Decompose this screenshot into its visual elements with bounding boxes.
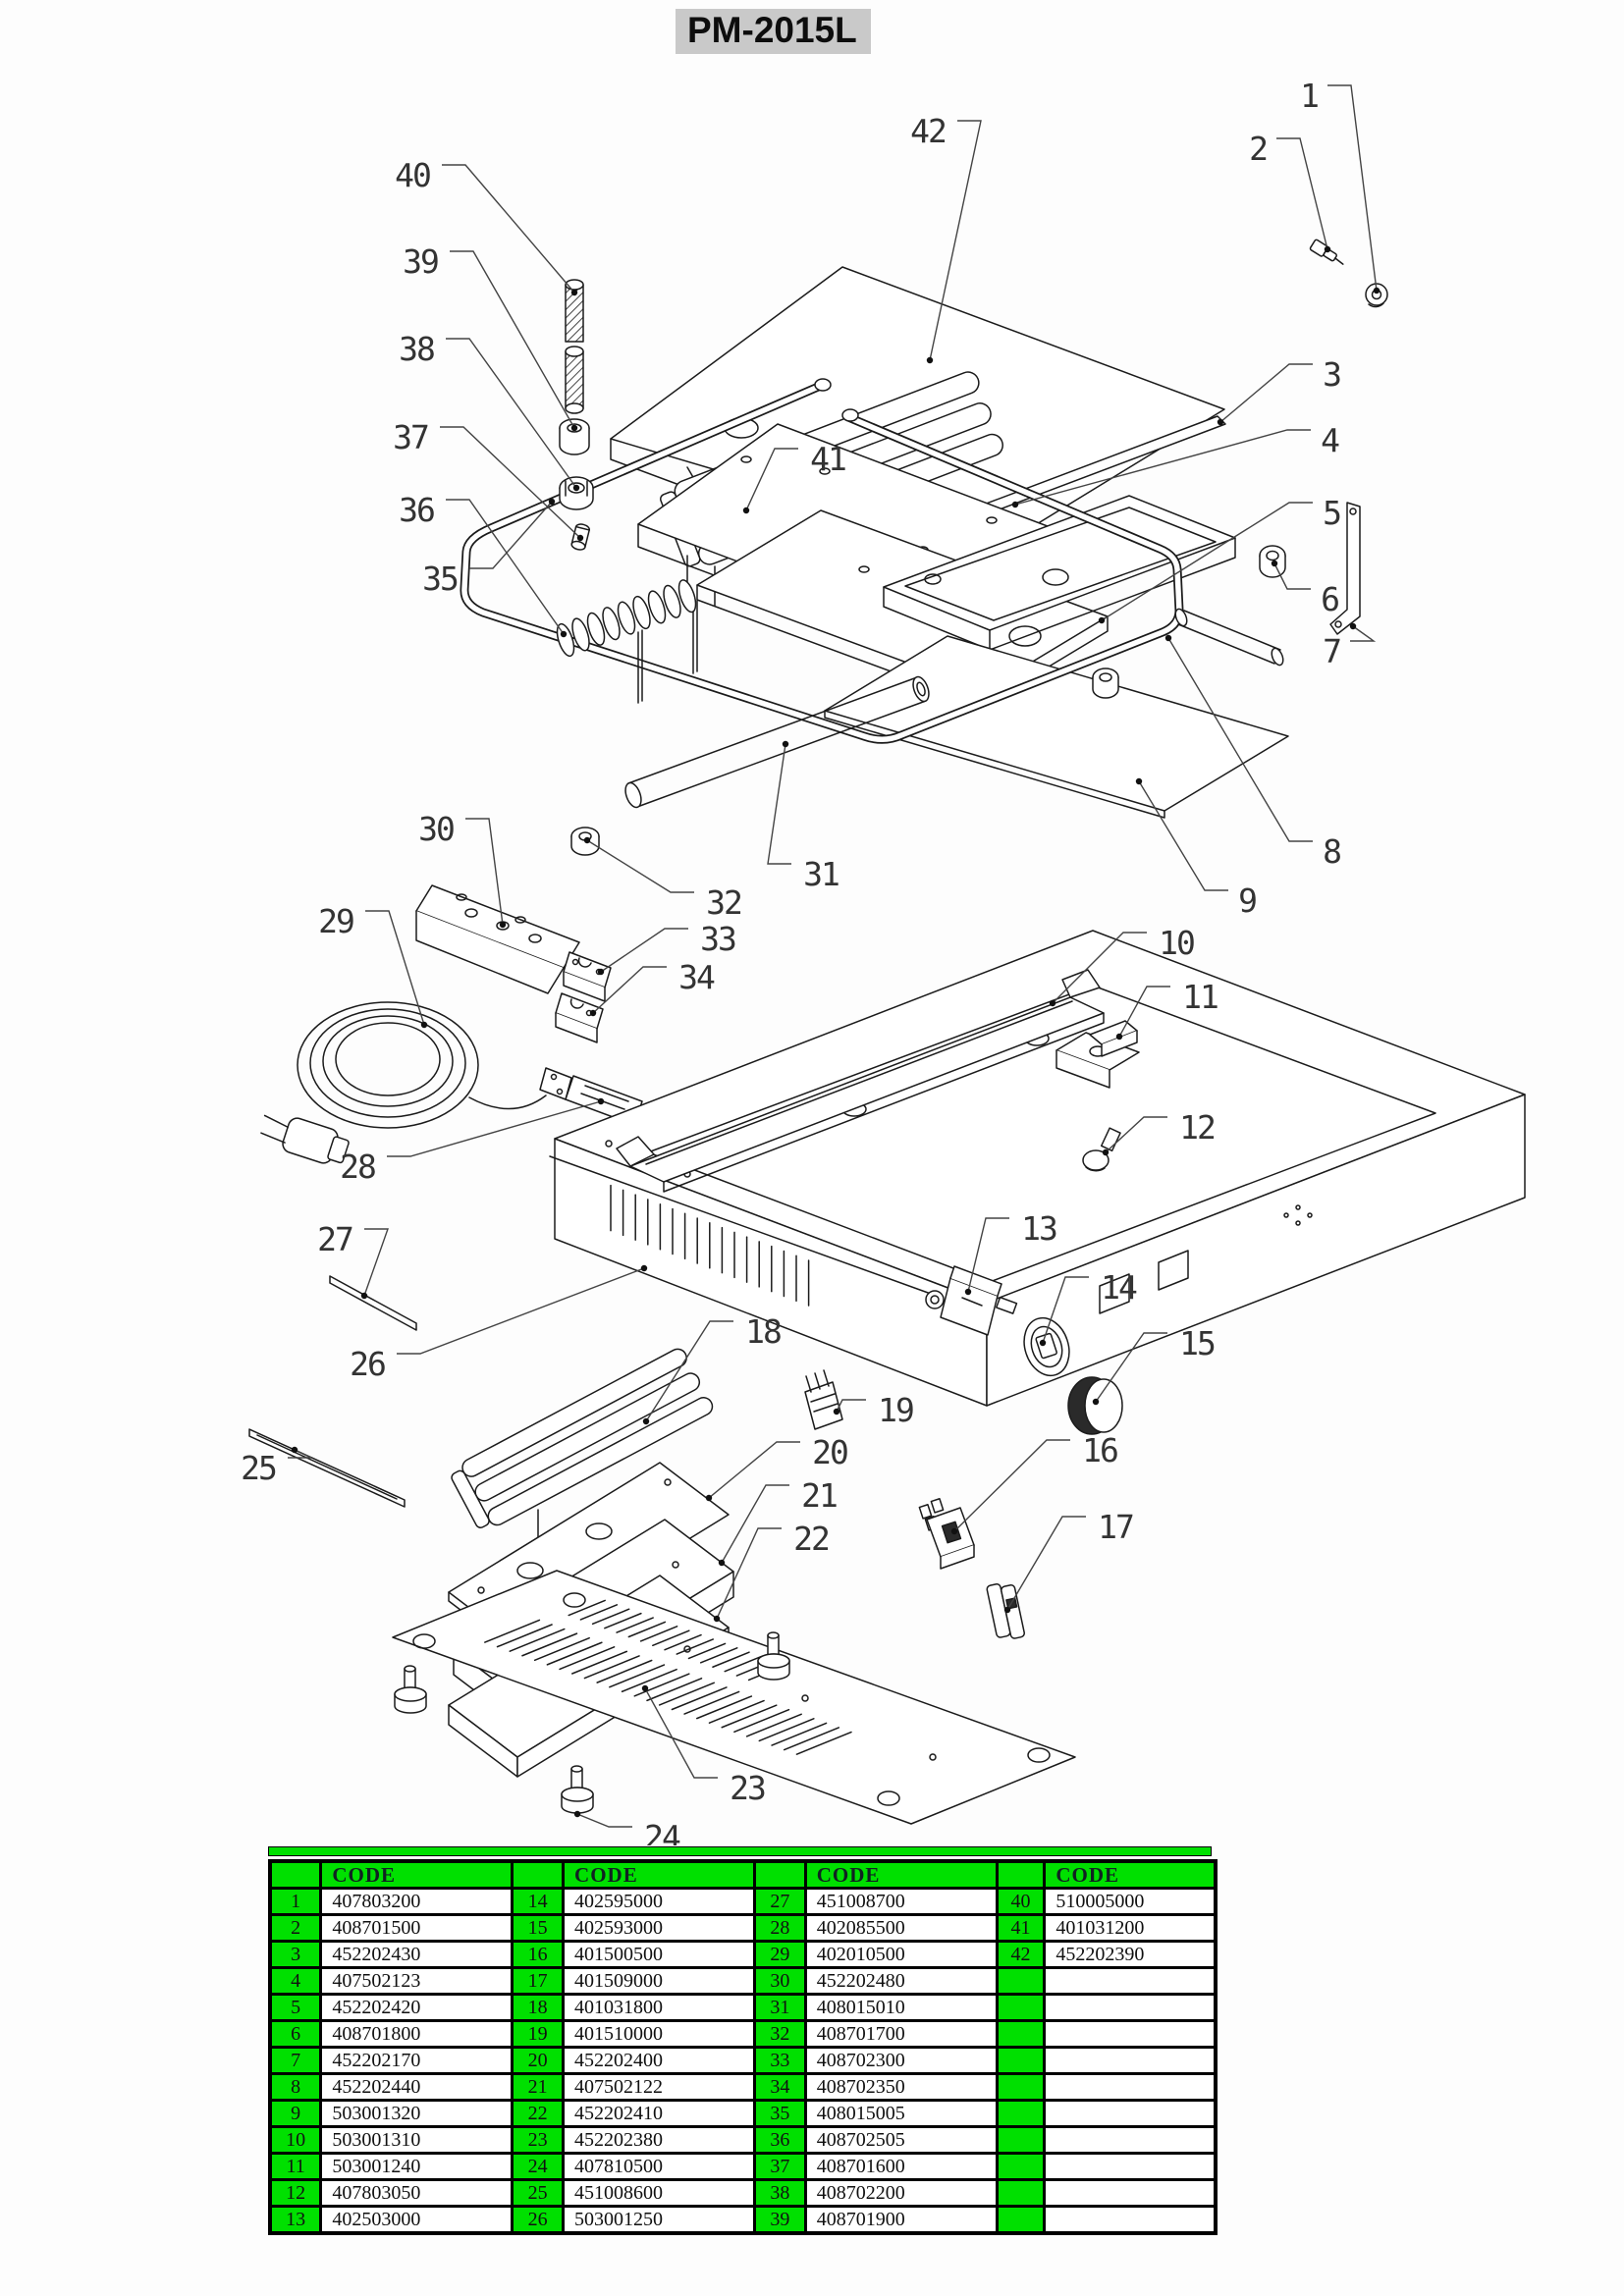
anchor-dot — [1218, 419, 1223, 425]
part-foot — [562, 1766, 593, 1813]
leader-line — [587, 840, 694, 892]
part-number-cell: 23 — [513, 2127, 564, 2154]
part-code-cell: 407803200 — [321, 1889, 513, 1915]
part-code-cell: 408702200 — [805, 2180, 997, 2207]
part-number-cell — [997, 1995, 1045, 2021]
part-number-cell: 18 — [513, 1995, 564, 2021]
part-number-cell: 37 — [754, 2154, 805, 2180]
callout-9: 9 — [1238, 881, 1256, 920]
leader-line — [722, 1485, 789, 1563]
part-number-cell — [997, 2074, 1045, 2101]
part-number-cell — [997, 2021, 1045, 2048]
part-code-cell: 402595000 — [564, 1889, 755, 1915]
callout-31: 31 — [803, 855, 839, 893]
part-number-cell: 32 — [754, 2021, 805, 2048]
anchor-dot — [549, 499, 555, 505]
callout-30: 30 — [418, 810, 454, 848]
anchor-dot — [1040, 1340, 1046, 1346]
leader-line — [954, 1440, 1070, 1531]
callout-1: 1 — [1300, 77, 1318, 115]
part-code-cell: 452202480 — [805, 1968, 997, 1995]
part-code-cell: 503001310 — [321, 2127, 513, 2154]
leader-line — [768, 744, 791, 864]
part-code-cell: 408701500 — [321, 1915, 513, 1942]
part-threaded-rod — [566, 280, 583, 413]
part-number-cell — [997, 2101, 1045, 2127]
callout-36: 36 — [399, 491, 434, 529]
table-header-num — [513, 1861, 564, 1889]
table-header-num — [997, 1861, 1045, 1889]
part-number-cell — [997, 2048, 1045, 2074]
anchor-dot — [598, 969, 604, 975]
callout-34: 34 — [678, 958, 715, 996]
callout-19: 19 — [878, 1391, 913, 1429]
part-screw-small — [1310, 240, 1347, 269]
part-code-cell: 408701900 — [805, 2207, 997, 2234]
callout-12: 12 — [1179, 1108, 1215, 1147]
anchor-dot — [834, 1409, 839, 1415]
callout-26: 26 — [350, 1345, 385, 1383]
part-code-cell — [1045, 1968, 1216, 1995]
part-code-cell: 407803050 — [321, 2180, 513, 2207]
callout-2: 2 — [1249, 130, 1267, 168]
table-row: 3452202430164015005002940201050042452202… — [270, 1942, 1216, 1968]
part-code-cell — [1045, 2180, 1216, 2207]
part-number-cell: 33 — [754, 2048, 805, 2074]
part-code-cell: 510005000 — [1045, 1889, 1216, 1915]
table-row: 64087018001940151000032408701700 — [270, 2021, 1216, 2048]
leader-line — [446, 339, 576, 488]
part-code-cell: 503001250 — [564, 2207, 755, 2234]
part-clamp-block-33 — [564, 952, 611, 1001]
anchor-dot — [574, 1811, 580, 1817]
part-pin-strip — [330, 1276, 416, 1330]
table-row: 134025030002650300125039408701900 — [270, 2207, 1216, 2234]
anchor-dot — [1093, 1399, 1099, 1405]
anchor-dot — [561, 631, 567, 637]
page: PM-2015L — [0, 0, 1624, 2296]
callout-17: 17 — [1098, 1508, 1133, 1546]
part-number-cell: 10 — [270, 2127, 321, 2154]
table-row: 54522024201840103180031408015010 — [270, 1995, 1216, 2021]
part-code-cell: 402503000 — [321, 2207, 513, 2234]
part-number-cell: 16 — [513, 1942, 564, 1968]
anchor-dot — [1350, 623, 1356, 629]
anchor-dot — [743, 507, 749, 513]
part-code-cell: 402593000 — [564, 1915, 755, 1942]
callout-35: 35 — [422, 560, 458, 598]
part-code-cell: 408701700 — [805, 2021, 997, 2048]
anchor-dot — [1116, 1034, 1122, 1040]
part-number-cell: 36 — [754, 2127, 805, 2154]
part-number-cell: 28 — [754, 1915, 805, 1942]
part-number-cell: 29 — [754, 1942, 805, 1968]
part-number-cell: 7 — [270, 2048, 321, 2074]
anchor-dot — [1136, 778, 1142, 784]
part-foot — [395, 1666, 426, 1713]
callout-23: 23 — [730, 1769, 765, 1807]
part-number-cell: 31 — [754, 1995, 805, 2021]
callout-18: 18 — [745, 1312, 781, 1351]
callout-42: 42 — [910, 112, 946, 150]
leader-line — [1220, 364, 1313, 422]
anchor-dot — [642, 1685, 648, 1691]
part-number-cell: 22 — [513, 2101, 564, 2127]
part-number-cell: 9 — [270, 2101, 321, 2127]
part-code-cell: 401031800 — [564, 1995, 755, 2021]
part-rocker-switch — [919, 1499, 974, 1569]
anchor-dot — [965, 1289, 971, 1295]
anchor-dot — [1004, 1607, 1010, 1613]
callout-24: 24 — [644, 1818, 680, 1845]
anchor-dot — [1165, 635, 1171, 641]
leader-line — [1276, 138, 1327, 249]
leader-line — [1007, 1517, 1086, 1610]
callout-22: 22 — [793, 1520, 829, 1558]
part-code-cell — [1045, 2101, 1216, 2127]
table-row: 105030013102345220238036408702505 — [270, 2127, 1216, 2154]
part-code-cell: 408701600 — [805, 2154, 997, 2180]
part-code-cell: 401500500 — [564, 1942, 755, 1968]
part-code-cell: 452202390 — [1045, 1942, 1216, 1968]
leader-line — [365, 911, 424, 1025]
part-hex-nut — [560, 477, 593, 509]
part-code-cell: 402010500 — [805, 1942, 997, 1968]
table-row: 74522021702045220240033408702300 — [270, 2048, 1216, 2074]
part-power-cord — [256, 1002, 546, 1169]
part-bracket-bar — [416, 885, 579, 993]
exploded-diagram: 1234567891011121314151617181920212223242… — [0, 0, 1624, 1845]
leader-line — [709, 1442, 800, 1498]
part-number-cell: 35 — [754, 2101, 805, 2127]
part-number-cell: 42 — [997, 1942, 1045, 1968]
part-code-cell: 401510000 — [564, 2021, 755, 2048]
part-code-cell — [1045, 2048, 1216, 2074]
callout-29: 29 — [318, 902, 353, 940]
part-number-cell — [997, 2180, 1045, 2207]
part-code-cell: 503001320 — [321, 2101, 513, 2127]
part-number-cell: 17 — [513, 1968, 564, 1995]
part-number-cell: 4 — [270, 1968, 321, 1995]
table-row: 1407803200144025950002745100870040510005… — [270, 1889, 1216, 1915]
part-flanged-bushing — [560, 419, 589, 454]
part-number-cell: 39 — [754, 2207, 805, 2234]
leader-line — [364, 1229, 388, 1296]
callout-7: 7 — [1323, 632, 1340, 670]
table-row: 115030012402440781050037408701600 — [270, 2154, 1216, 2180]
callout-40: 40 — [395, 156, 430, 194]
part-number-cell: 13 — [270, 2207, 321, 2234]
anchor-dot — [1103, 1149, 1109, 1155]
leader-line — [577, 1814, 632, 1827]
part-code-cell: 452202380 — [564, 2127, 755, 2154]
part-number-cell: 38 — [754, 2180, 805, 2207]
part-code-cell: 408702350 — [805, 2074, 997, 2101]
anchor-dot — [571, 290, 577, 295]
part-number-cell: 21 — [513, 2074, 564, 2101]
parts-table: CODECODECODECODE 14078032001440259500027… — [268, 1859, 1218, 2235]
table-row: 44075021231740150900030452202480 — [270, 1968, 1216, 1995]
part-code-cell: 408702505 — [805, 2127, 997, 2154]
part-number-cell: 20 — [513, 2048, 564, 2074]
callout-39: 39 — [403, 242, 438, 281]
part-number-cell: 6 — [270, 2021, 321, 2048]
callout-14: 14 — [1101, 1268, 1137, 1307]
part-number-cell — [997, 1968, 1045, 1995]
part-code-cell: 451008700 — [805, 1889, 997, 1915]
anchor-dot — [292, 1447, 298, 1453]
anchor-dot — [641, 1265, 647, 1271]
part-number-cell: 26 — [513, 2207, 564, 2234]
leader-line — [397, 1268, 644, 1354]
leader-line — [601, 929, 688, 972]
leader-line — [837, 1400, 866, 1412]
part-number-cell: 2 — [270, 1915, 321, 1942]
part-code-cell: 407502123 — [321, 1968, 513, 1995]
part-code-cell — [1045, 2127, 1216, 2154]
part-code-cell: 408015005 — [805, 2101, 997, 2127]
part-code-cell — [1045, 1995, 1216, 2021]
part-code-cell: 407810500 — [564, 2154, 755, 2180]
part-code-cell: 452202440 — [321, 2074, 513, 2101]
part-number-cell: 40 — [997, 1889, 1045, 1915]
part-number-cell — [997, 2154, 1045, 2180]
anchor-dot — [714, 1616, 720, 1622]
part-knob — [1068, 1377, 1122, 1434]
anchor-dot — [1012, 502, 1018, 507]
part-code-cell: 407502122 — [564, 2074, 755, 2101]
callout-33: 33 — [700, 920, 735, 958]
anchor-dot — [1050, 1000, 1056, 1006]
anchor-dot — [783, 741, 788, 747]
callout-41: 41 — [810, 440, 845, 478]
part-number-cell: 27 — [754, 1889, 805, 1915]
part-number-cell — [997, 2207, 1045, 2234]
callout-27: 27 — [317, 1220, 352, 1258]
table-row: 95030013202245220241035408015005 — [270, 2101, 1216, 2127]
anchor-dot — [573, 485, 579, 491]
table-row: 124078030502545100860038408702200 — [270, 2180, 1216, 2207]
callout-6: 6 — [1321, 580, 1338, 618]
callout-4: 4 — [1321, 421, 1339, 459]
part-code-cell — [1045, 2207, 1216, 2234]
anchor-dot — [951, 1528, 957, 1534]
callout-8: 8 — [1323, 832, 1340, 871]
part-number-cell: 12 — [270, 2180, 321, 2207]
part-code-cell: 451008600 — [564, 2180, 755, 2207]
anchor-dot — [927, 357, 933, 363]
callout-21: 21 — [801, 1476, 837, 1515]
part-code-cell: 408015010 — [805, 1995, 997, 2021]
part-code-cell: 401509000 — [564, 1968, 755, 1995]
part-code-cell: 503001240 — [321, 2154, 513, 2180]
table-header-num — [754, 1861, 805, 1889]
part-connector-block — [805, 1370, 842, 1429]
part-code-cell: 402085500 — [805, 1915, 997, 1942]
callout-3: 3 — [1323, 355, 1340, 394]
callout-32: 32 — [706, 883, 741, 922]
table-header-code: CODE — [321, 1861, 513, 1889]
leader-line — [450, 251, 574, 428]
part-code-cell: 401031200 — [1045, 1915, 1216, 1942]
anchor-dot — [598, 1098, 604, 1104]
part-number-cell: 19 — [513, 2021, 564, 2048]
part-number-cell: 1 — [270, 1889, 321, 1915]
part-spring — [554, 578, 699, 703]
table-row: 2408701500154025930002840208550041401031… — [270, 1915, 1216, 1942]
callout-37: 37 — [393, 418, 428, 456]
anchor-dot — [719, 1560, 725, 1566]
table-top-bar — [268, 1846, 1212, 1856]
part-lower-sheet — [825, 636, 1288, 818]
part-clamp-block-34 — [556, 993, 603, 1042]
part-number-cell: 15 — [513, 1915, 564, 1942]
callout-20: 20 — [812, 1433, 847, 1471]
table-header-code: CODE — [805, 1861, 997, 1889]
anchor-dot — [1272, 561, 1277, 566]
part-code-cell — [1045, 2154, 1216, 2180]
part-number-cell: 24 — [513, 2154, 564, 2180]
part-foot — [758, 1632, 789, 1680]
callout-25: 25 — [241, 1449, 276, 1487]
part-code-cell: 408701800 — [321, 2021, 513, 2048]
callout-38: 38 — [399, 330, 434, 368]
anchor-dot — [1374, 288, 1380, 294]
anchor-dot — [590, 1010, 596, 1016]
part-code-cell: 452202430 — [321, 1942, 513, 1968]
anchor-dot — [421, 1022, 427, 1028]
part-code-cell — [1045, 2021, 1216, 2048]
callout-28: 28 — [340, 1148, 375, 1186]
anchor-dot — [584, 837, 590, 843]
callout-13: 13 — [1021, 1209, 1056, 1248]
part-number-cell: 30 — [754, 1968, 805, 1995]
part-number-cell: 41 — [997, 1915, 1045, 1942]
table-header-code: CODE — [564, 1861, 755, 1889]
anchor-dot — [706, 1495, 712, 1501]
part-number-cell: 14 — [513, 1889, 564, 1915]
part-code-cell: 452202400 — [564, 2048, 755, 2074]
anchor-dot — [361, 1293, 367, 1299]
callout-11: 11 — [1182, 978, 1218, 1016]
part-number-cell: 11 — [270, 2154, 321, 2180]
table-header-code: CODE — [1045, 1861, 1216, 1889]
callout-16: 16 — [1082, 1431, 1117, 1469]
part-number-cell: 3 — [270, 1942, 321, 1968]
anchor-dot — [643, 1418, 649, 1424]
part-number-cell: 5 — [270, 1995, 321, 2021]
anchor-dot — [1099, 617, 1105, 623]
part-number-cell: 34 — [754, 2074, 805, 2101]
part-number-cell: 8 — [270, 2074, 321, 2101]
callout-15: 15 — [1179, 1324, 1215, 1362]
part-code-cell: 452202170 — [321, 2048, 513, 2074]
anchor-dot — [571, 425, 577, 431]
part-code-cell: 452202410 — [564, 2101, 755, 2127]
part-code-cell: 452202420 — [321, 1995, 513, 2021]
part-number-cell: 25 — [513, 2180, 564, 2207]
callout-10: 10 — [1159, 924, 1194, 962]
table-row: 84522024402140750212234408702350 — [270, 2074, 1216, 2101]
callout-5: 5 — [1323, 494, 1340, 532]
part-code-cell — [1045, 2074, 1216, 2101]
part-code-cell: 408702300 — [805, 2048, 997, 2074]
leader-line — [442, 165, 574, 293]
anchor-dot — [1325, 246, 1330, 252]
part-number-cell — [997, 2127, 1045, 2154]
anchor-dot — [500, 922, 506, 928]
table-header-num — [270, 1861, 321, 1889]
anchor-dot — [577, 535, 583, 541]
